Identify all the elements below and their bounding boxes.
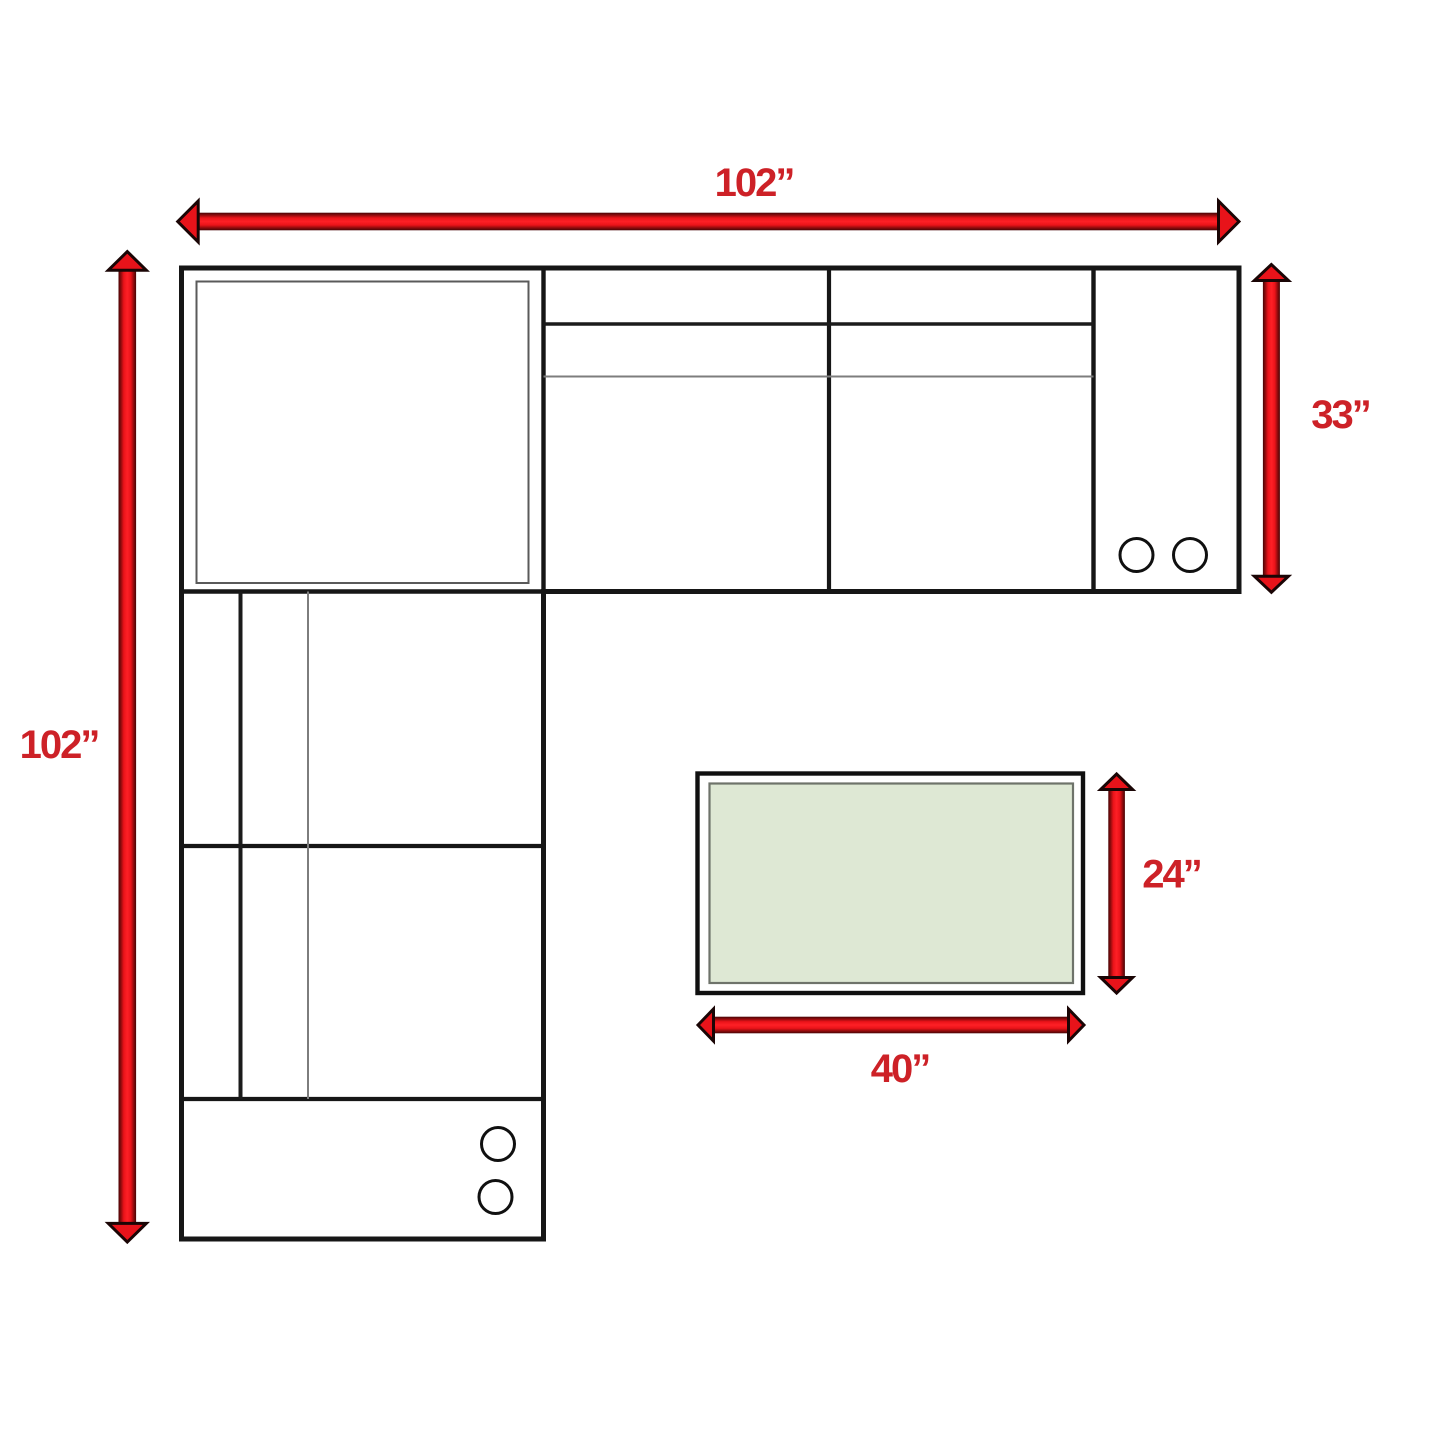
svg-text:40”: 40” — [871, 1047, 930, 1091]
svg-text:102”: 102” — [715, 161, 794, 205]
svg-text:33”: 33” — [1311, 393, 1370, 437]
svg-text:24”: 24” — [1142, 853, 1201, 897]
svg-text:102”: 102” — [20, 723, 99, 767]
